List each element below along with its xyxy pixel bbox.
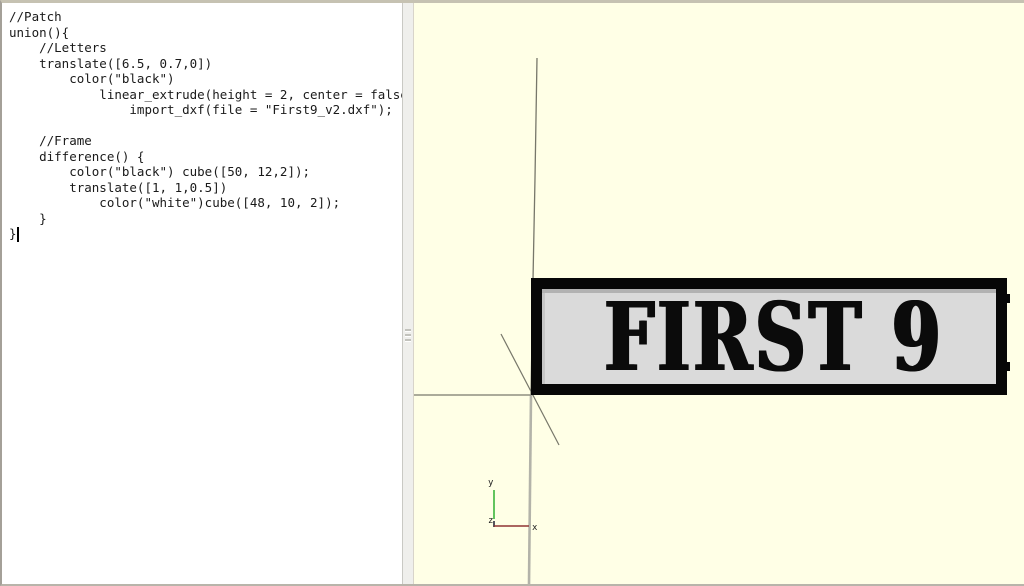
y-axis-negative-line <box>529 395 531 584</box>
patch-label: FIRST 9 <box>594 289 943 384</box>
pane-splitter[interactable] <box>403 3 414 584</box>
openscad-window: //Patch union(){ //Letters translate([6.… <box>0 0 1024 586</box>
patch-model: FIRST 9 <box>531 278 1007 395</box>
gizmo-y-label: y <box>488 478 494 488</box>
text-cursor <box>17 227 19 242</box>
render-artifact <box>1006 362 1010 371</box>
code-editor-pane[interactable]: //Patch union(){ //Letters translate([6.… <box>2 3 403 584</box>
code-text[interactable]: //Patch union(){ //Letters translate([6.… <box>2 3 402 242</box>
gizmo-z-label: z <box>488 516 493 526</box>
gizmo-x-label: x <box>532 523 538 533</box>
render-artifact <box>1006 294 1010 303</box>
splitter-grip-icon <box>405 327 411 344</box>
3d-viewport[interactable]: y z x FIRST 9 <box>414 3 1024 584</box>
